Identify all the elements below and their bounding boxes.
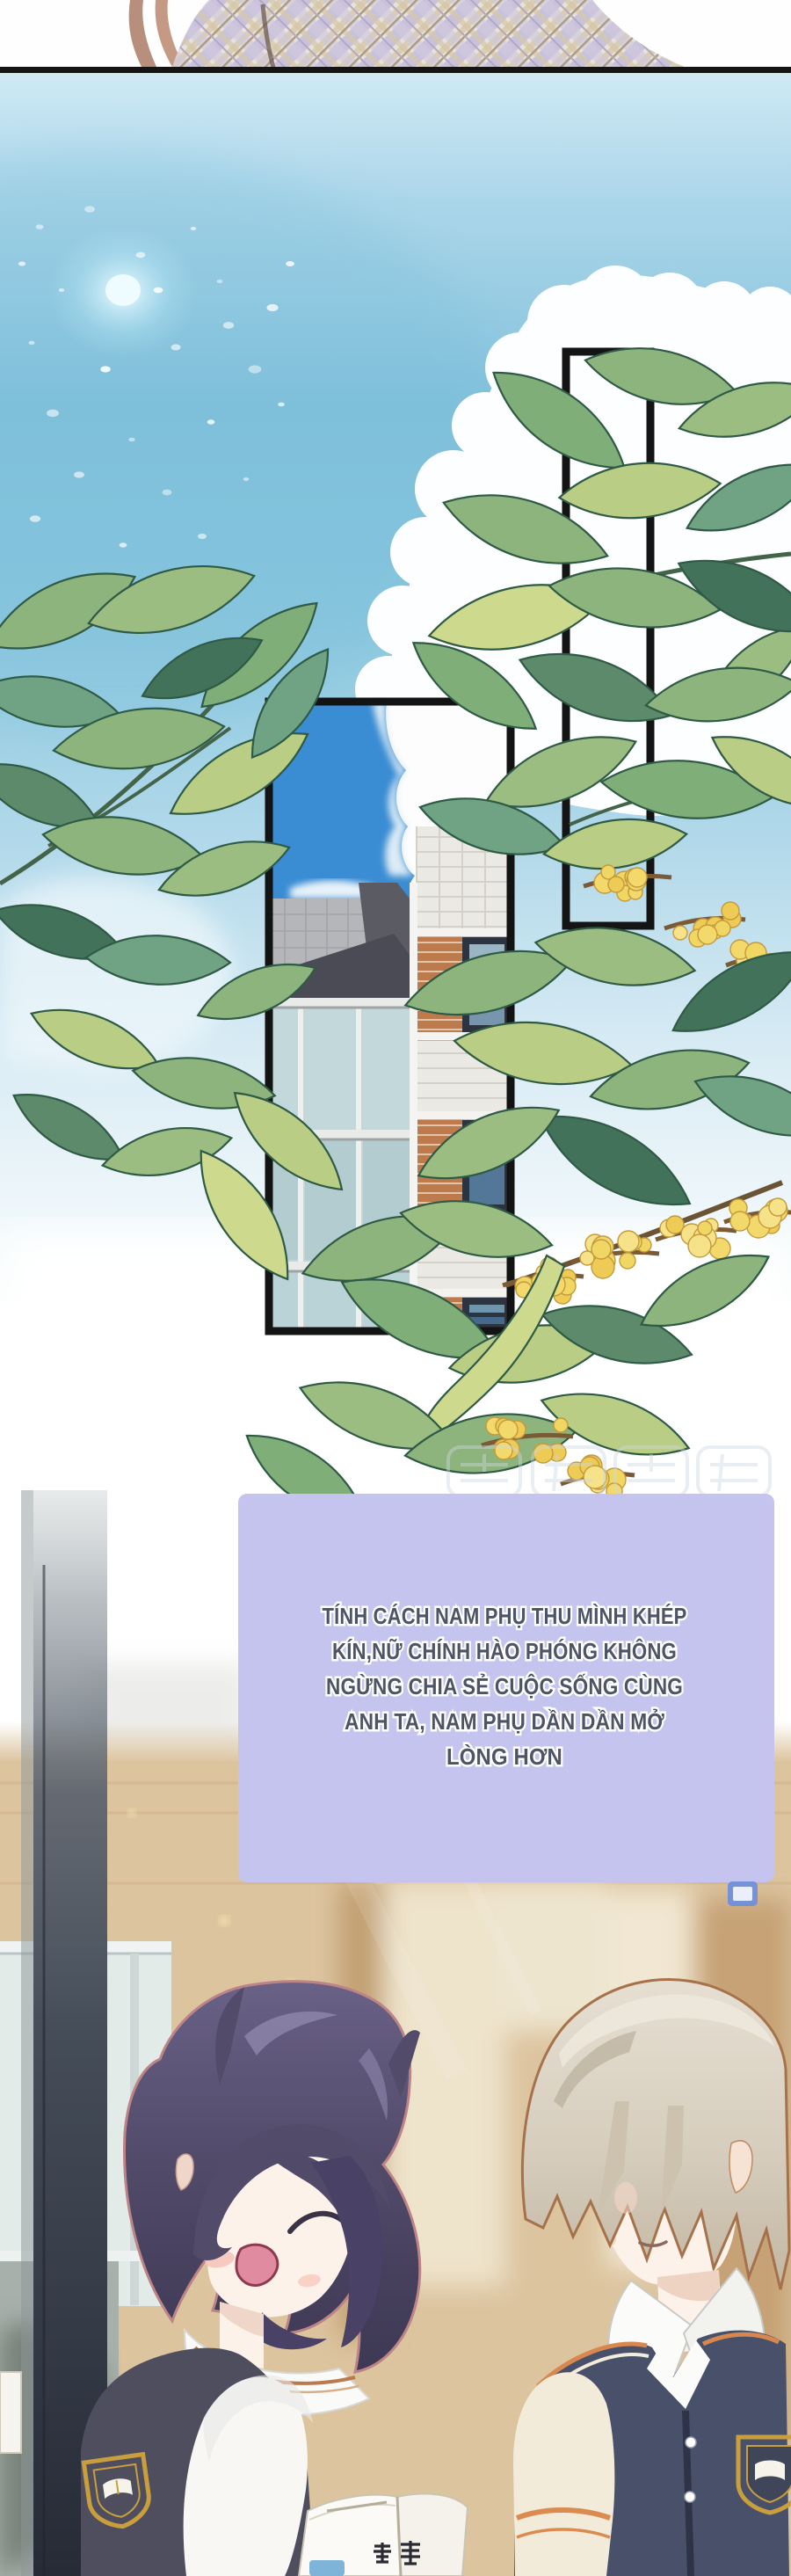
svg-text:NGỪNG CHIA SẺ CUỘC SỐNG CÙNG: NGỪNG CHIA SẺ CUỘC SỐNG CÙNG: [326, 1673, 683, 1699]
svg-text:LÒNG HƠN: LÒNG HƠN: [446, 1743, 562, 1770]
svg-text:TÍNH CÁCH NAM PHỤ THU MÌNH KHÉ: TÍNH CÁCH NAM PHỤ THU MÌNH KHÉP: [323, 1603, 687, 1629]
svg-text:KÍN,NỮ CHÍNH HÀO PHÓNG KHÔNG: KÍN,NỮ CHÍNH HÀO PHÓNG KHÔNG: [332, 1638, 677, 1664]
svg-text:ANH TA, NAM PHỤ DẦN DẦN MỞ: ANH TA, NAM PHỤ DẦN DẦN MỞ: [345, 1707, 665, 1735]
